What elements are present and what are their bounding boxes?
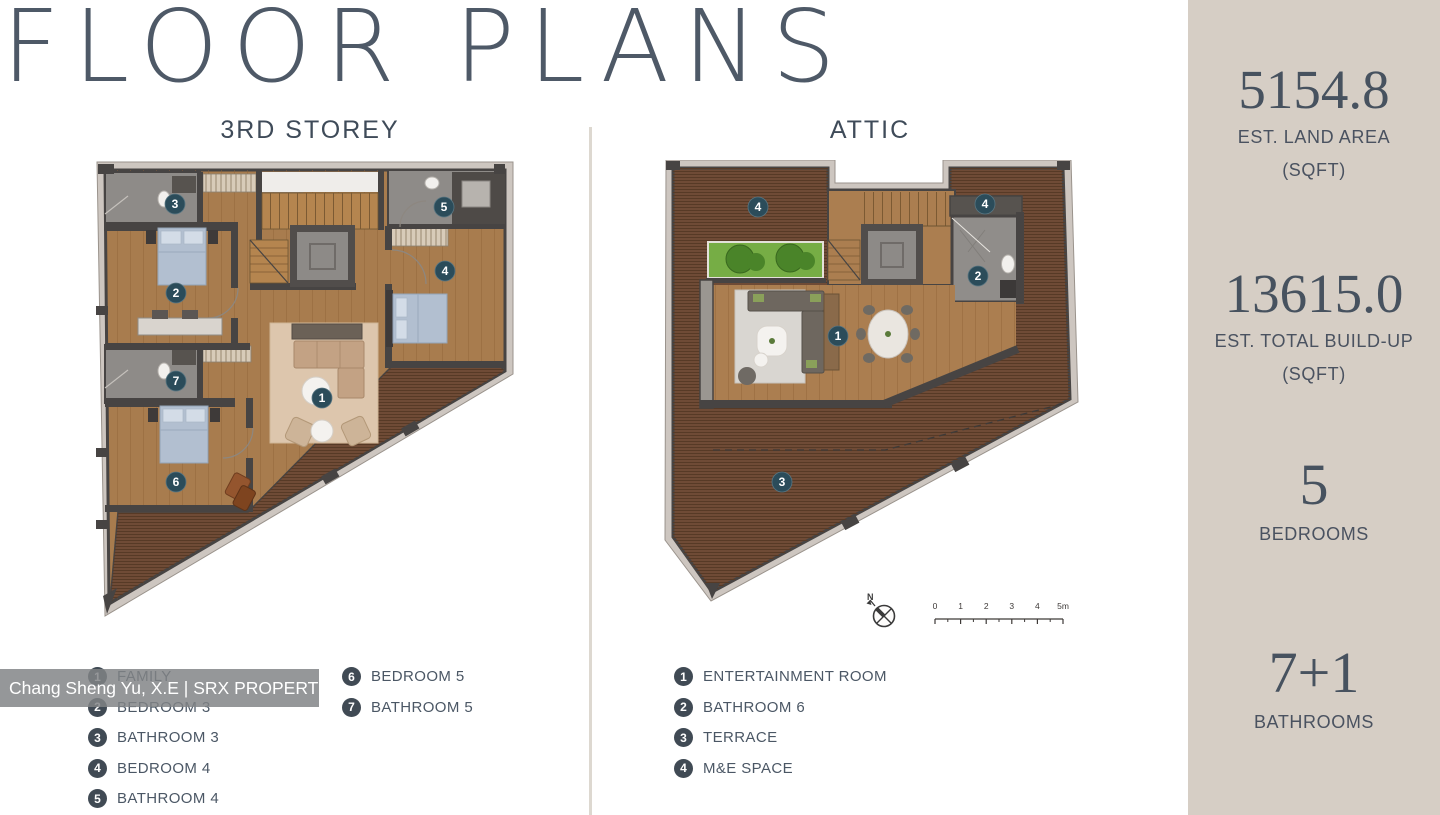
room-badge-mande-right: 4 xyxy=(975,194,995,214)
legend-label: TERRACE xyxy=(703,729,777,746)
room-badge-terrace: 3 xyxy=(772,472,792,492)
wardrobe-hatch-bed4 xyxy=(390,228,448,246)
svg-text:4: 4 xyxy=(982,197,989,211)
legend-badge: 3 xyxy=(674,728,693,747)
legend-item-bathroom5: 7 BATHROOM 5 xyxy=(342,698,473,717)
legend-badge: 4 xyxy=(88,759,107,778)
room-badge-bathroom3: 3 xyxy=(165,194,185,214)
vertical-divider xyxy=(589,127,592,815)
agent-watermark: Chang Sheng Yu, X.E | SRX PROPERTY xyxy=(0,669,319,707)
legend-item-bathroom4: 5 BATHROOM 4 xyxy=(88,789,219,808)
legend-label: BATHROOM 6 xyxy=(703,699,805,716)
legend-label: BEDROOM 4 xyxy=(117,760,211,777)
room-badge-bathroom4: 5 xyxy=(434,197,454,217)
legend-label: BATHROOM 3 xyxy=(117,729,219,746)
legend-label: M&E SPACE xyxy=(703,760,793,777)
stat-caption: BEDROOMS xyxy=(1188,524,1440,545)
svg-text:2: 2 xyxy=(984,601,989,611)
svg-text:3: 3 xyxy=(1009,601,1014,611)
room-badge-bathroom5: 7 xyxy=(166,371,186,391)
svg-text:4: 4 xyxy=(755,200,762,214)
svg-text:0: 0 xyxy=(933,601,938,611)
bedroom-4-bed xyxy=(386,290,447,347)
dining-set xyxy=(856,305,920,363)
svg-text:3: 3 xyxy=(172,197,179,211)
svg-text:3: 3 xyxy=(779,475,786,489)
svg-text:5: 5 xyxy=(441,200,448,214)
svg-text:2: 2 xyxy=(173,286,180,300)
room-badge-bedroom3: 2 xyxy=(166,283,186,303)
stat-land-area: 5154.8 EST. LAND AREA (SQFT) xyxy=(1188,62,1440,181)
family-area xyxy=(270,323,378,448)
stat-total-buildup: 13615.0 EST. TOTAL BUILD-UP (SQFT) xyxy=(1188,266,1440,385)
stat-value: 7+1 xyxy=(1188,644,1440,702)
room-badge-bathroom6: 2 xyxy=(968,266,988,286)
svg-text:4: 4 xyxy=(442,264,449,278)
stat-value: 5 xyxy=(1188,456,1440,514)
room-badge-bedroom4: 4 xyxy=(435,261,455,281)
stat-caption: EST. TOTAL BUILD-UP xyxy=(1188,331,1440,352)
room-badge-entertainment: 1 xyxy=(828,326,848,346)
room-badge-mande-left: 4 xyxy=(748,197,768,217)
svg-text:6: 6 xyxy=(173,475,180,489)
svg-text:1: 1 xyxy=(835,329,842,343)
svg-text:1: 1 xyxy=(958,601,963,611)
elevator xyxy=(861,224,923,286)
legend-badge: 7 xyxy=(342,698,361,717)
svg-text:2: 2 xyxy=(975,269,982,283)
svg-text:7: 7 xyxy=(173,374,180,388)
planter-box xyxy=(708,242,823,278)
svg-text:1: 1 xyxy=(319,391,326,405)
stat-unit: (SQFT) xyxy=(1188,364,1440,385)
bathroom-6 xyxy=(952,216,1022,302)
legend-item-bathroom3: 3 BATHROOM 3 xyxy=(88,728,219,747)
bathroom-3 xyxy=(105,172,200,230)
legend-label: BEDROOM 5 xyxy=(371,668,465,685)
page-title: FLOOR PLANS xyxy=(2,0,849,99)
stat-caption: BATHROOMS xyxy=(1188,712,1440,733)
plan-label-attic: ATTIC xyxy=(655,116,1085,145)
room-badge-bedroom5: 6 xyxy=(166,472,186,492)
legend-badge: 6 xyxy=(342,667,361,686)
legend-badge: 1 xyxy=(674,667,693,686)
elevator xyxy=(290,225,355,287)
legend-label: BATHROOM 5 xyxy=(371,699,473,716)
legend-3rd-storey-col2: 6 BEDROOM 5 7 BATHROOM 5 xyxy=(342,667,473,728)
stat-bathrooms: 7+1 BATHROOMS xyxy=(1188,644,1440,733)
plan-label-3rd-storey: 3RD STOREY xyxy=(95,116,525,145)
compass-icon: N xyxy=(867,592,895,627)
stat-value: 5154.8 xyxy=(1188,62,1440,117)
entertainment-furniture xyxy=(735,290,839,385)
legend-badge: 4 xyxy=(674,759,693,778)
legend-badge: 2 xyxy=(674,698,693,717)
stats-sidebar: 5154.8 EST. LAND AREA (SQFT) 13615.0 EST… xyxy=(1188,0,1440,815)
legend-badge: 5 xyxy=(88,789,107,808)
legend-item-bedroom5: 6 BEDROOM 5 xyxy=(342,667,473,686)
floor-plan-attic: 1 2 3 4 4 N xyxy=(655,160,1085,630)
legend-item-bedroom4: 4 BEDROOM 4 xyxy=(88,759,219,778)
stat-bedrooms: 5 BEDROOMS xyxy=(1188,456,1440,545)
svg-text:5m: 5m xyxy=(1057,601,1069,611)
svg-text:N: N xyxy=(867,592,874,602)
scale-bar: 0 1 2 3 4 5m xyxy=(933,601,1069,624)
legend-item-bathroom6: 2 BATHROOM 6 xyxy=(674,698,887,717)
legend-item-mande-space: 4 M&E SPACE xyxy=(674,759,887,778)
bathroom-5 xyxy=(105,345,200,403)
bathroom-right-wall xyxy=(1016,212,1024,304)
floor-plans-page: FLOOR PLANS 3RD STOREY ATTIC xyxy=(0,0,1440,815)
stat-caption: EST. LAND AREA xyxy=(1188,127,1440,148)
legend-label: BATHROOM 4 xyxy=(117,790,219,807)
legend-item-terrace: 3 TERRACE xyxy=(674,728,887,747)
legend-attic: 1 ENTERTAINMENT ROOM 2 BATHROOM 6 3 TERR… xyxy=(674,667,887,789)
legend-badge: 3 xyxy=(88,728,107,747)
stat-value: 13615.0 xyxy=(1188,266,1440,321)
stat-unit: (SQFT) xyxy=(1188,160,1440,181)
legend-item-entertainment-room: 1 ENTERTAINMENT ROOM xyxy=(674,667,887,686)
floor-plan-3rd-storey: 1 2 3 4 5 6 7 xyxy=(88,160,528,630)
svg-text:4: 4 xyxy=(1035,601,1040,611)
legend-label: ENTERTAINMENT ROOM xyxy=(703,668,887,685)
room-badge-family: 1 xyxy=(312,388,332,408)
